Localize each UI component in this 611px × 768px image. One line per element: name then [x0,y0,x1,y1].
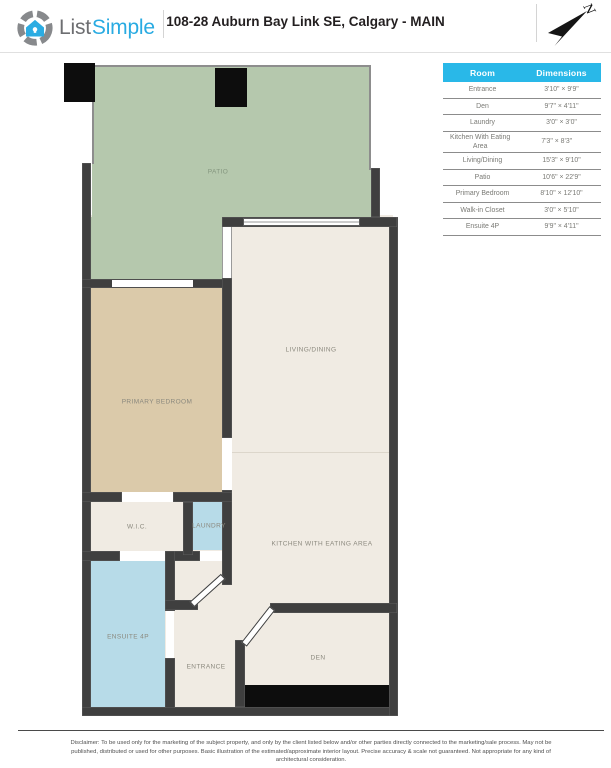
cell-dims: 15'3" × 9'10" [522,155,601,166]
cell-dims: 9'7" × 4'11" [522,101,601,112]
table-row: Kitchen With Eating Area 7'3" × 8'3" [443,132,601,154]
room-dimensions-table: Room Dimensions Entrance 3'10" × 9'9" De… [443,63,601,236]
room-label-den: DEN [311,655,326,662]
wall [165,658,175,708]
cell-room: Laundry [443,117,522,128]
cell-dims: 3'0" × 3'0" [522,117,601,128]
wall [222,278,232,438]
wall [371,168,380,217]
cell-room: Primary Bedroom [443,188,522,199]
window-living-patio [222,227,232,278]
cell-dims: 10'6" × 22'9" [522,172,601,183]
wall [82,492,122,502]
wall [82,551,120,561]
room-label-ensuite: ENSUITE 4P [107,634,149,641]
room-patio-lower [90,217,222,288]
door-opening-bedroom [222,438,232,490]
disclaimer-line: published, distributed or used for other… [18,748,604,757]
cell-dims: 7'3" × 8'3" [517,136,596,147]
table-header-row: Room Dimensions [443,63,601,82]
room-label-living: LIVING/DINING [286,347,337,354]
structure-post-left [64,63,95,102]
wall [235,640,245,707]
cell-room: Living/Dining [443,155,522,166]
room-label-patio: PATIO [208,169,229,176]
wall [82,707,398,716]
room-label-entrance: ENTRANCE [187,664,226,671]
door-opening-laundry [200,551,222,561]
patio-border-top [92,65,371,67]
table-row: Entrance 3'10" × 9'9" [443,82,601,99]
table-row: Living/Dining 15'3" × 9'10" [443,153,601,170]
table-row: Den 9'7" × 4'11" [443,99,601,116]
table-header-dimensions: Dimensions [522,68,601,78]
cell-room: Entrance [443,84,522,95]
cell-room: Kitchen With Eating Area [443,132,517,153]
room-label-bedroom: PRIMARY BEDROOM [122,399,193,406]
cell-room: Den [443,101,522,112]
wall [222,490,232,585]
disclaimer-line: architectural consideration. [18,756,604,765]
wall [173,492,232,502]
living-kitchen-divider [232,452,389,453]
cell-room: Walk-in Closet [443,205,522,216]
cell-dims: 9'9" × 4'11" [522,221,601,232]
window-living-top [243,218,360,226]
table-row: Walk-in Closet 3'0" × 5'10" [443,203,601,220]
table-row: Ensuite 4P 9'9" × 4'11" [443,219,601,236]
door-opening-wic-ensuite [120,551,165,561]
door-opening-ensuite [166,611,174,658]
structure-post-middle [215,68,247,107]
cell-dims: 3'0" × 5'10" [522,205,601,216]
disclaimer-footer: Disclaimer: To be used only for the mark… [18,730,604,765]
room-label-laundry: LAUNDRY [192,523,226,530]
room-label-wic: W.I.C. [127,524,147,531]
room-primary-bedroom [90,288,222,492]
structure-den-south [243,685,389,707]
cell-room: Patio [443,172,522,183]
patio-border-right [369,65,371,170]
disclaimer-line: Disclaimer: To be used only for the mark… [18,739,604,748]
room-label-kitchen: KITCHEN WITH EATING AREA [272,541,373,548]
wall [82,163,91,715]
cell-dims: 3'10" × 9'9" [522,84,601,95]
window-bedroom-patio [112,280,193,287]
table-row: Patio 10'6" × 22'9" [443,170,601,187]
cell-dims: 8'10" × 12'10" [522,188,601,199]
wall [389,217,398,716]
table-row: Laundry 3'0" × 3'0" [443,115,601,132]
wall [270,603,397,613]
table-header-room: Room [443,68,522,78]
cell-room: Ensuite 4P [443,221,522,232]
door-opening-bedroom-wic [122,492,173,502]
table-row: Primary Bedroom 8'10" × 12'10" [443,186,601,203]
